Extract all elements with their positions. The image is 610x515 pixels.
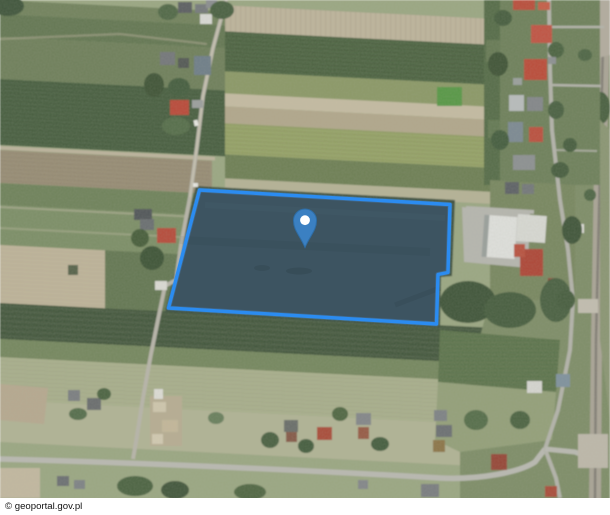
svg-text:© geoportal.gov.pl: © geoportal.gov.pl xyxy=(5,501,82,512)
